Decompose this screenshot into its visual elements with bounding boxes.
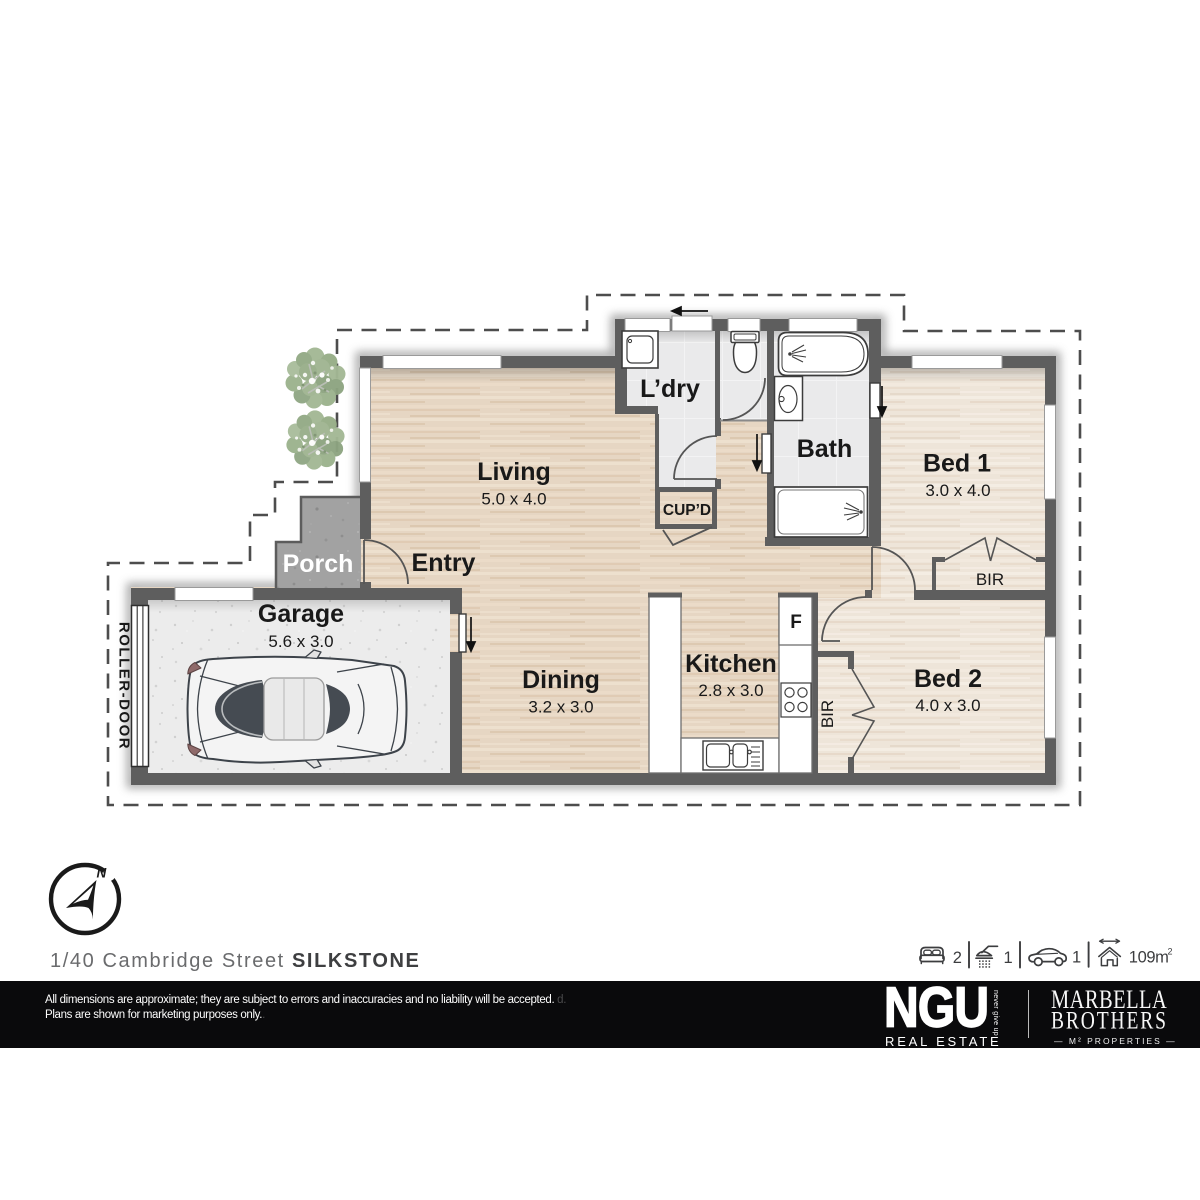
- svg-text:Bath: Bath: [797, 435, 853, 463]
- svg-text:Dining: Dining: [522, 666, 600, 694]
- svg-text:1: 1: [1072, 949, 1081, 967]
- svg-text:ROLLER-DOOR: ROLLER-DOOR: [116, 622, 133, 750]
- svg-text:2: 2: [953, 949, 962, 967]
- svg-text:4.0 x 3.0: 4.0 x 3.0: [915, 696, 980, 715]
- svg-text:L’dry: L’dry: [640, 375, 700, 403]
- svg-text:Entry: Entry: [412, 549, 476, 577]
- svg-text:3.2 x 3.0: 3.2 x 3.0: [528, 698, 593, 717]
- svg-text:Bed 1: Bed 1: [923, 450, 991, 478]
- svg-text:3.0 x 4.0: 3.0 x 4.0: [925, 481, 990, 500]
- svg-text:2.8 x 3.0: 2.8 x 3.0: [698, 681, 763, 700]
- svg-text:Bed 2: Bed 2: [914, 665, 982, 693]
- svg-text:2: 2: [1168, 947, 1173, 957]
- svg-text:5.6 x 3.0: 5.6 x 3.0: [268, 632, 333, 651]
- svg-text:Porch: Porch: [283, 550, 354, 578]
- svg-text:BIR: BIR: [976, 570, 1004, 589]
- svg-text:5.0 x 4.0: 5.0 x 4.0: [481, 490, 546, 509]
- svg-text:Kitchen: Kitchen: [685, 650, 777, 678]
- svg-text:N: N: [97, 866, 107, 881]
- svg-text:1/40 Cambridge Street SILKSTON: 1/40 Cambridge Street SILKSTONE: [50, 950, 420, 972]
- svg-text:F: F: [790, 612, 802, 633]
- svg-text:CUP’D: CUP’D: [663, 502, 711, 519]
- svg-text:109m: 109m: [1129, 949, 1169, 967]
- svg-text:Living: Living: [477, 458, 551, 486]
- svg-text:1: 1: [1004, 949, 1013, 967]
- svg-text:Garage: Garage: [258, 600, 344, 628]
- svg-text:BIR: BIR: [818, 700, 837, 728]
